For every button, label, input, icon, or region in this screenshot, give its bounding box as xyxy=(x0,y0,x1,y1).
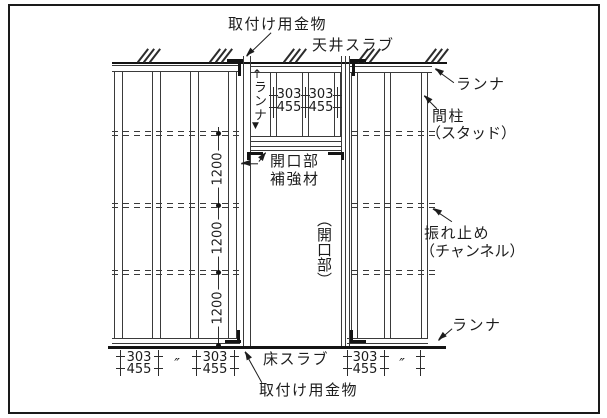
ditto-mark: ″ xyxy=(399,355,405,373)
dimension-dot xyxy=(216,343,221,348)
down-arrow-icon: ▼ xyxy=(252,122,259,131)
opening-header-runner xyxy=(251,141,341,142)
bracing-channel-line xyxy=(352,270,438,271)
dimension-cross xyxy=(230,368,239,369)
dimension-cross xyxy=(343,368,352,369)
bottom-runner-right xyxy=(347,343,428,344)
bracing-channel-line xyxy=(112,135,240,136)
bracing-channel-line xyxy=(352,207,438,208)
dimension-value: 455 xyxy=(277,100,302,115)
dimension-tick xyxy=(337,87,338,118)
ceiling-slab-label: 天井スラブ xyxy=(312,37,395,54)
up-arrow-icon: ↑ xyxy=(252,68,262,80)
stud-label: 間柱 xyxy=(432,108,465,125)
runner-bottom-right-label: ランナ xyxy=(452,317,502,334)
stud-line xyxy=(384,73,385,338)
opening-label: （開口部） xyxy=(314,212,335,287)
stud-line xyxy=(122,72,123,338)
bracing-channel-line xyxy=(112,131,240,132)
opening-reinforcement-label: 補強材 xyxy=(270,171,320,188)
dimension-cross xyxy=(380,368,389,369)
bracing-channel-line xyxy=(112,207,240,208)
dimension-value: 1200 xyxy=(211,150,226,187)
dimension-cross xyxy=(154,356,163,357)
right-jamb-line xyxy=(349,56,350,346)
header-bracket xyxy=(341,152,344,160)
dimension-tick xyxy=(120,350,121,376)
dimension-tick xyxy=(234,350,235,376)
top-runner-left xyxy=(112,65,240,66)
mounting-bracket xyxy=(237,330,240,343)
dimension-tick xyxy=(347,350,348,376)
top-runner-center xyxy=(251,66,341,67)
bottom-runner-left xyxy=(112,338,240,339)
dimension-cross xyxy=(116,356,125,357)
stud-line xyxy=(236,72,237,338)
right-jamb-line xyxy=(341,56,342,346)
stud-line xyxy=(421,73,422,338)
dimension-cross xyxy=(154,368,163,369)
spandrel-stud-line xyxy=(270,72,271,136)
stud-line xyxy=(390,73,391,338)
bracing-label: 振れ止め xyxy=(424,225,490,242)
opening-reinforcement-label: 開口部 xyxy=(270,153,320,170)
opening-header-reinforcement xyxy=(251,146,341,147)
mounting-bracket xyxy=(350,330,353,343)
floor-slab-line xyxy=(108,346,446,349)
right-jamb-line xyxy=(345,56,346,346)
bracing-sub-label: （チャンネル） xyxy=(420,243,525,260)
dimension-value: 1200 xyxy=(211,289,226,326)
dimension-cross xyxy=(416,356,425,357)
dimension-value: 455 xyxy=(127,362,152,377)
dimension-dot xyxy=(216,131,221,136)
dimension-value: 455 xyxy=(353,362,378,377)
dimension-tick xyxy=(420,350,421,376)
spandrel-stud-line xyxy=(334,72,335,136)
dimension-value: 1200 xyxy=(211,219,226,256)
dimension-tick xyxy=(196,350,197,376)
bottom-runner-right xyxy=(347,338,428,339)
top-runner-left xyxy=(112,71,240,72)
bracing-channel-line xyxy=(112,203,240,204)
dimension-tick xyxy=(273,87,274,118)
dimension-tick xyxy=(384,350,385,376)
dimension-dot xyxy=(216,270,221,275)
top-runner-right xyxy=(350,66,432,67)
mounting-hardware-bottom-label: 取付け用金物 xyxy=(259,382,358,399)
bracing-channel-line xyxy=(352,203,438,204)
dimension-cross xyxy=(343,356,352,357)
spandrel-stud-line xyxy=(302,72,303,136)
dimension-value: 455 xyxy=(309,100,334,115)
dimension-cross xyxy=(192,356,201,357)
dimension-cross xyxy=(230,356,239,357)
stud-line xyxy=(190,72,191,338)
bracing-channel-line xyxy=(352,274,438,275)
top-runner-center xyxy=(251,72,341,73)
arrowhead-icon xyxy=(241,160,250,166)
bracing-channel-line xyxy=(112,274,240,275)
stud-line xyxy=(114,72,115,338)
floor-slab-label: 床スラブ xyxy=(263,351,329,368)
dimension-cross xyxy=(333,95,342,96)
bottom-runner-left xyxy=(112,343,240,344)
dimension-cross xyxy=(116,368,125,369)
dimension-value: 455 xyxy=(203,362,228,377)
left-jamb-line xyxy=(243,56,244,346)
dimension-dot xyxy=(216,203,221,208)
mounting-bracket xyxy=(238,59,241,76)
stud-line xyxy=(351,73,352,338)
ceiling-slab-line xyxy=(112,62,447,64)
runner-top-right-label: ランナ xyxy=(456,76,506,93)
spandrel-runner-label: ランナ xyxy=(249,80,268,122)
opening-header-runner xyxy=(251,136,341,137)
mounting-hardware-top-label: 取付け用金物 xyxy=(228,16,327,33)
bracing-channel-line xyxy=(112,270,240,271)
stud-line xyxy=(427,73,428,338)
top-runner-right xyxy=(350,72,432,73)
stud-line xyxy=(357,73,358,338)
dimension-cross xyxy=(380,356,389,357)
dimension-cross xyxy=(416,368,425,369)
dimension-tick xyxy=(305,87,306,118)
mounting-bracket xyxy=(227,59,243,62)
dimension-cross xyxy=(333,107,342,108)
mounting-bracket xyxy=(352,59,355,76)
stud-line xyxy=(152,72,153,338)
stud-line xyxy=(198,72,199,338)
stud-sub-label: （スタッド） xyxy=(426,125,516,142)
dimension-tick xyxy=(158,350,159,376)
stud-line xyxy=(228,72,229,338)
ditto-mark: ″ xyxy=(174,355,180,373)
wall-framing-diagram: 1200 1200 1200 303 455 303 455 303 455 ″… xyxy=(0,0,607,418)
stud-line xyxy=(160,72,161,338)
dimension-cross xyxy=(192,368,201,369)
spandrel-stud-line xyxy=(340,72,341,136)
